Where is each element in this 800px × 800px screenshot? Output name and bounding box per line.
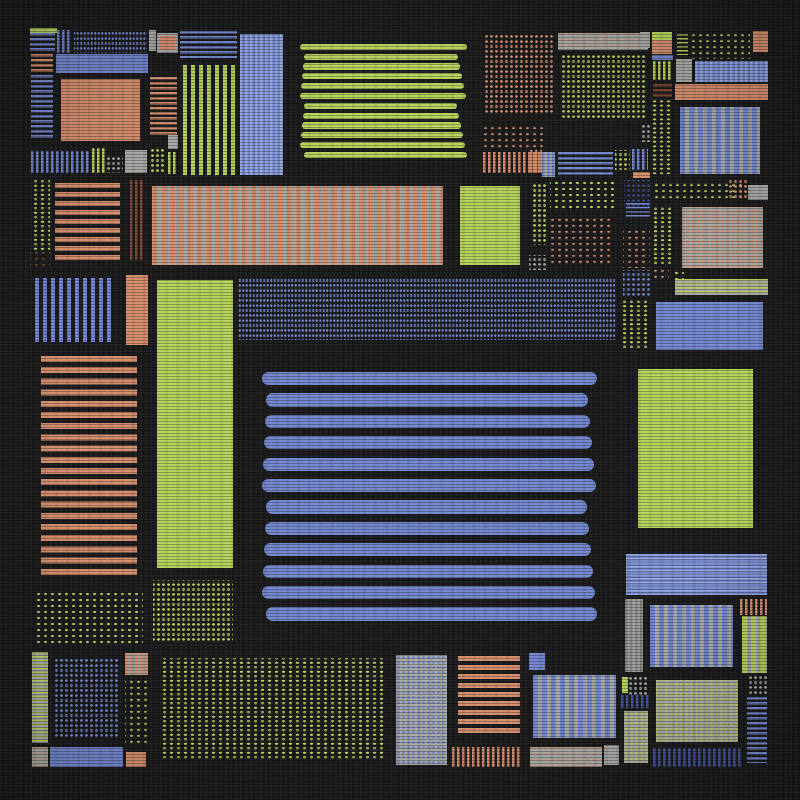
patch	[74, 30, 147, 53]
patch	[31, 54, 53, 72]
patch	[152, 186, 443, 265]
patch	[623, 270, 650, 298]
patch	[458, 656, 520, 734]
patch	[604, 745, 619, 765]
patch	[160, 658, 385, 760]
patch	[396, 655, 447, 765]
patch	[32, 747, 48, 767]
patch	[640, 125, 650, 142]
patch	[126, 752, 146, 767]
patch	[656, 302, 763, 350]
stripe-bar	[304, 103, 457, 109]
stripe-bar	[304, 152, 467, 158]
stripe-bar	[301, 132, 463, 138]
patch	[742, 616, 767, 673]
stripe-bar	[300, 44, 467, 50]
patch	[653, 268, 669, 280]
stripe-bar	[303, 63, 460, 69]
patch	[529, 653, 545, 670]
patch	[31, 75, 53, 140]
patch	[183, 65, 235, 175]
patch	[107, 155, 123, 173]
patch	[623, 300, 650, 350]
patch	[160, 36, 175, 50]
patch	[41, 356, 137, 580]
patch	[650, 100, 670, 174]
patch	[480, 125, 545, 149]
stripe-bar	[300, 142, 465, 148]
patch	[30, 33, 55, 53]
patch	[533, 675, 616, 738]
patch	[652, 40, 672, 54]
patch	[640, 32, 650, 48]
patch	[55, 183, 120, 260]
stripe-bar	[302, 73, 462, 79]
stripe-bar	[262, 479, 596, 492]
patch	[558, 33, 648, 50]
patch	[92, 148, 105, 173]
patch	[747, 676, 767, 694]
stripe-bar	[266, 393, 588, 406]
patch	[652, 55, 673, 60]
patch	[32, 652, 48, 743]
patch	[622, 677, 628, 693]
stripe-bar	[262, 586, 595, 599]
patch	[31, 151, 90, 173]
patch	[625, 599, 643, 672]
patch	[56, 54, 148, 73]
patch	[125, 653, 148, 675]
patch	[615, 150, 630, 170]
stripe-bar	[303, 113, 459, 119]
stripe-bar	[265, 522, 589, 535]
patch	[677, 34, 688, 55]
stripe-bar	[304, 54, 458, 60]
patch	[629, 675, 649, 695]
patch	[653, 748, 742, 767]
patch	[61, 79, 140, 141]
stripe-bar	[266, 500, 587, 513]
patch	[753, 31, 768, 52]
stripe-bar	[262, 372, 597, 385]
patch	[452, 747, 520, 767]
generative-quilt-artwork	[0, 0, 800, 800]
patch	[150, 148, 165, 173]
patch	[30, 252, 50, 268]
patch	[550, 180, 615, 210]
patch	[621, 695, 650, 708]
patch	[168, 135, 178, 149]
patch	[240, 34, 283, 175]
patch	[530, 150, 542, 173]
patch	[747, 697, 767, 763]
patch	[35, 278, 113, 342]
patch	[560, 55, 645, 120]
patch	[168, 152, 178, 174]
patch	[624, 711, 648, 763]
patch	[653, 61, 672, 80]
stripe-bar	[266, 607, 597, 620]
patch	[55, 657, 118, 737]
patch	[153, 580, 233, 643]
patch	[626, 554, 767, 595]
patch	[180, 31, 237, 58]
patch	[57, 30, 72, 53]
patch	[130, 180, 143, 260]
patch	[50, 747, 123, 767]
patch	[740, 599, 767, 615]
patch	[532, 183, 546, 245]
patch	[150, 77, 177, 135]
patch	[633, 172, 650, 178]
patch	[675, 279, 768, 295]
patch	[680, 107, 760, 174]
patch	[262, 368, 598, 625]
patch	[550, 215, 610, 265]
patch	[656, 680, 738, 742]
patch	[695, 61, 768, 82]
patch	[638, 369, 753, 528]
stripe-bar	[264, 543, 591, 556]
patch	[623, 227, 650, 268]
stripe-bar	[301, 83, 464, 89]
stripe-bar	[264, 436, 592, 449]
patch	[157, 280, 233, 568]
stripe-bar	[302, 122, 461, 128]
patch	[33, 593, 143, 645]
patch	[558, 152, 613, 177]
patch	[485, 33, 555, 115]
patch	[727, 180, 747, 200]
patch	[653, 207, 673, 265]
patch	[149, 30, 156, 51]
stripe-bar	[300, 93, 466, 99]
patch	[748, 185, 768, 200]
stripe-bar	[263, 565, 593, 578]
patch	[675, 84, 768, 100]
patch	[529, 255, 546, 270]
patch	[653, 84, 672, 99]
patch	[125, 677, 148, 743]
patch	[300, 42, 468, 160]
patch	[460, 186, 520, 265]
patch	[652, 32, 672, 40]
stripe-bar	[265, 415, 590, 428]
patch	[530, 747, 602, 767]
patch	[690, 34, 750, 59]
patch	[676, 59, 692, 82]
patch	[650, 605, 733, 667]
patch	[632, 149, 648, 170]
patch	[126, 275, 148, 345]
patch	[125, 150, 147, 173]
stripe-bar	[263, 458, 594, 471]
patch	[32, 180, 50, 250]
patch	[238, 278, 615, 340]
patch	[626, 203, 650, 217]
patch	[682, 207, 763, 268]
patch	[542, 152, 555, 177]
